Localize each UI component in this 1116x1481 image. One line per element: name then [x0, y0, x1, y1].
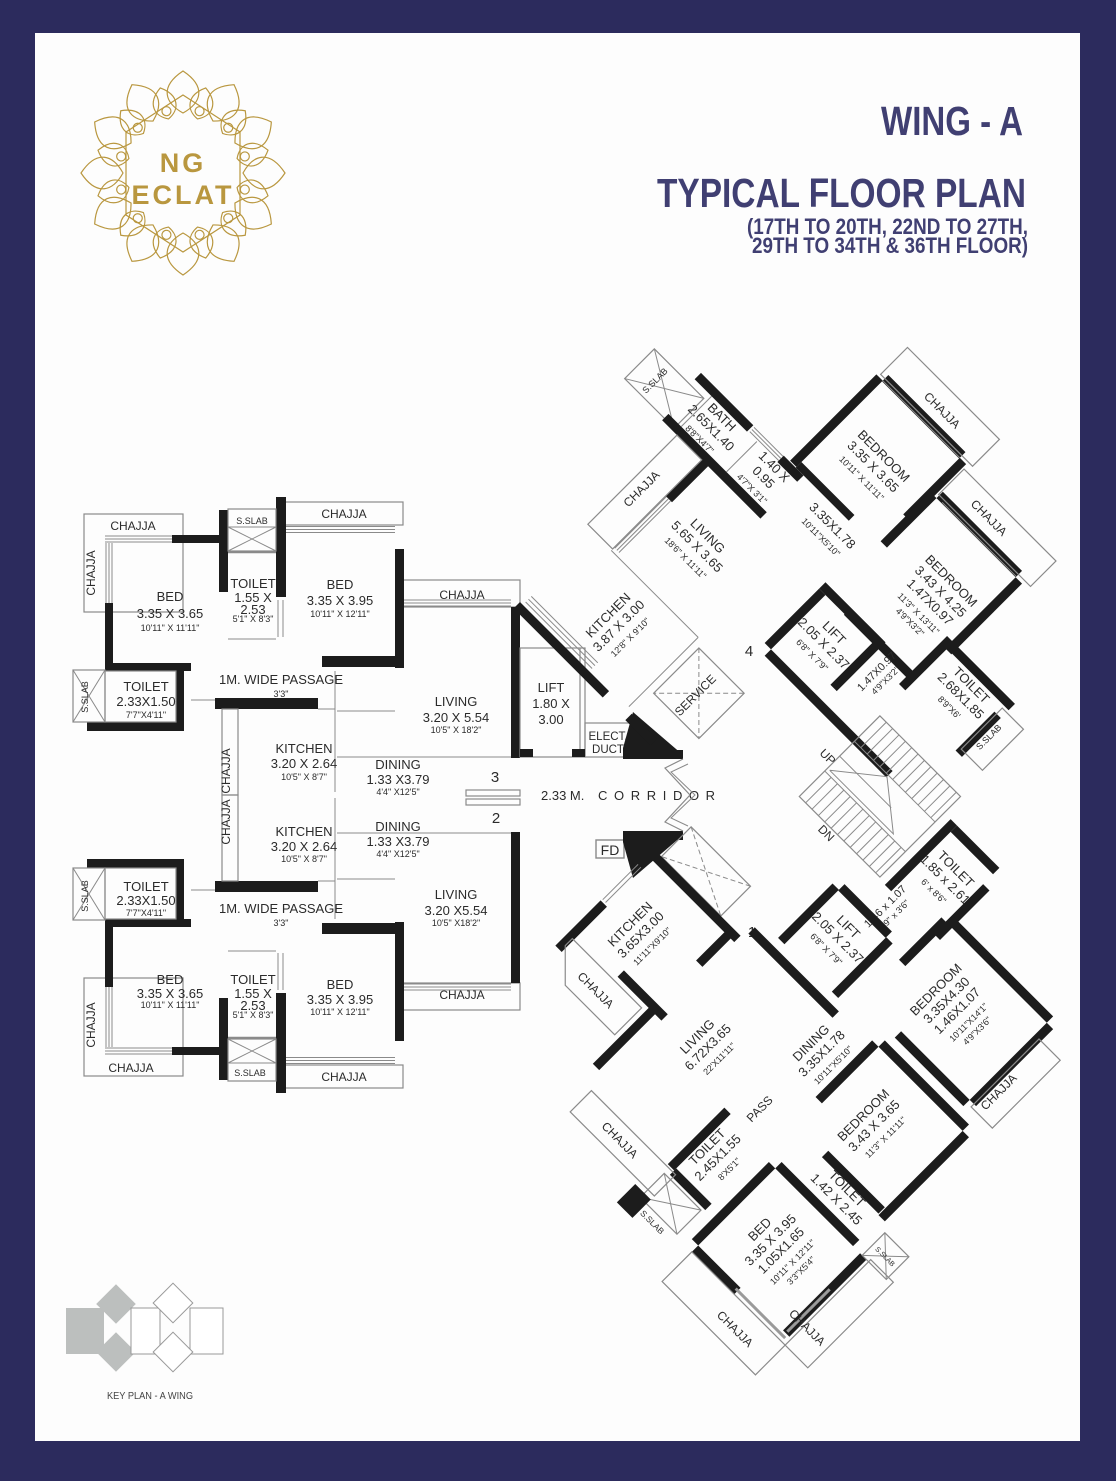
svg-text:TOILET: TOILET: [123, 679, 168, 694]
svg-text:S.SLAB: S.SLAB: [80, 880, 90, 912]
svg-text:NG: NG: [160, 148, 207, 178]
svg-text:KEY PLAN - A WING: KEY PLAN - A WING: [107, 1390, 193, 1402]
svg-text:CHAJJA: CHAJJA: [439, 988, 484, 1002]
svg-text:CHAJJA: CHAJJA: [439, 588, 484, 602]
svg-text:3'3": 3'3": [274, 689, 289, 699]
svg-text:BED: BED: [327, 977, 354, 992]
svg-text:10'5" X18'2": 10'5" X18'2": [432, 918, 480, 928]
svg-text:DINING: DINING: [375, 819, 421, 834]
svg-text:ELECT.: ELECT.: [589, 731, 628, 743]
svg-text:3.20 X 2.64: 3.20 X 2.64: [271, 756, 338, 771]
svg-text:10'11" X 11'11": 10'11" X 11'11": [141, 623, 200, 633]
svg-text:S.SLAB: S.SLAB: [80, 681, 90, 713]
svg-text:10'11" X 12'11": 10'11" X 12'11": [310, 1007, 370, 1017]
svg-text:3.20 X5.54: 3.20 X5.54: [425, 903, 488, 918]
svg-text:CHAJJA: CHAJJA: [219, 799, 233, 844]
svg-text:KITCHEN: KITCHEN: [275, 741, 332, 756]
svg-text:4: 4: [745, 643, 753, 660]
svg-text:LIVING: LIVING: [435, 694, 478, 709]
svg-text:7'7"X4'11": 7'7"X4'11": [126, 710, 166, 720]
svg-text:7'7"X4'11": 7'7"X4'11": [126, 908, 166, 918]
svg-text:ECLAT: ECLAT: [132, 180, 235, 210]
svg-text:10'11" X 12'11": 10'11" X 12'11": [310, 609, 370, 619]
svg-text:3.20 X 5.54: 3.20 X 5.54: [423, 710, 490, 725]
svg-text:S.SLAB: S.SLAB: [236, 516, 268, 526]
svg-text:DUCT: DUCT: [592, 744, 624, 756]
svg-text:BED: BED: [157, 972, 184, 987]
svg-text:2.33X1.50: 2.33X1.50: [116, 694, 175, 709]
svg-text:TOILET: TOILET: [123, 879, 168, 894]
svg-text:WING - A: WING - A: [881, 98, 1023, 144]
svg-text:LIFT: LIFT: [538, 680, 565, 695]
svg-text:10'11" X 11'11": 10'11" X 11'11": [141, 1000, 200, 1010]
svg-text:2.33X1.50: 2.33X1.50: [116, 893, 175, 908]
svg-text:CHAJJA: CHAJJA: [108, 1061, 153, 1075]
svg-text:3.35 X 3.95: 3.35 X 3.95: [307, 992, 374, 1007]
svg-text:4'4" X12'5": 4'4" X12'5": [376, 849, 419, 859]
svg-text:4'4" X12'5": 4'4" X12'5": [376, 787, 419, 797]
svg-text:1.33 X3.79: 1.33 X3.79: [367, 834, 430, 849]
svg-text:5'1" X 8'3": 5'1" X 8'3": [233, 1010, 274, 1020]
svg-text:TYPICAL FLOOR PLAN: TYPICAL FLOOR PLAN: [657, 170, 1026, 216]
svg-text:BED: BED: [327, 577, 354, 592]
svg-text:KITCHEN: KITCHEN: [275, 824, 332, 839]
svg-text:10'5" X 18'2": 10'5" X 18'2": [431, 725, 482, 735]
svg-text:CHAJJA: CHAJJA: [110, 519, 155, 533]
svg-text:CHAJJA: CHAJJA: [321, 1070, 366, 1084]
svg-text:3: 3: [491, 769, 499, 786]
svg-text:CHAJJA: CHAJJA: [84, 550, 98, 595]
svg-text:10'5" X 8'7": 10'5" X 8'7": [281, 854, 327, 864]
svg-text:CHAJJA: CHAJJA: [84, 1002, 98, 1047]
svg-text:TOILET: TOILET: [230, 972, 275, 987]
svg-text:3.20 X 2.64: 3.20 X 2.64: [271, 839, 338, 854]
svg-text:1.33 X3.79: 1.33 X3.79: [367, 772, 430, 787]
svg-text:10'5" X 8'7": 10'5" X 8'7": [281, 772, 327, 782]
svg-text:1.80 X: 1.80 X: [532, 696, 570, 711]
svg-text:29TH TO 34TH & 36TH FLOOR): 29TH TO 34TH & 36TH FLOOR): [752, 233, 1028, 258]
svg-text:5'1" X 8'3": 5'1" X 8'3": [233, 614, 274, 624]
svg-text:3.35 X 3.65: 3.35 X 3.65: [137, 986, 204, 1001]
svg-text:3.00: 3.00: [538, 712, 563, 727]
svg-text:3'3": 3'3": [274, 918, 289, 928]
svg-text:3.35 X 3.65: 3.35 X 3.65: [137, 606, 204, 621]
svg-text:2: 2: [492, 810, 500, 827]
svg-text:1M. WIDE PASSAGE: 1M. WIDE PASSAGE: [219, 901, 343, 916]
svg-text:FD: FD: [601, 842, 620, 858]
svg-text:2.33 M.: 2.33 M.: [541, 788, 584, 803]
svg-text:BED: BED: [157, 589, 184, 604]
svg-text:S.SLAB: S.SLAB: [234, 1068, 266, 1078]
svg-text:CHAJJA: CHAJJA: [219, 748, 233, 793]
svg-text:1M. WIDE PASSAGE: 1M. WIDE PASSAGE: [219, 672, 343, 687]
svg-text:TOILET: TOILET: [230, 576, 275, 591]
svg-text:3.35 X 3.95: 3.35 X 3.95: [307, 593, 374, 608]
svg-text:LIVING: LIVING: [435, 887, 478, 902]
svg-text:CHAJJA: CHAJJA: [321, 507, 366, 521]
svg-text:C O R R I D O R: C O R R I D O R: [598, 788, 717, 803]
svg-text:DINING: DINING: [375, 757, 421, 772]
